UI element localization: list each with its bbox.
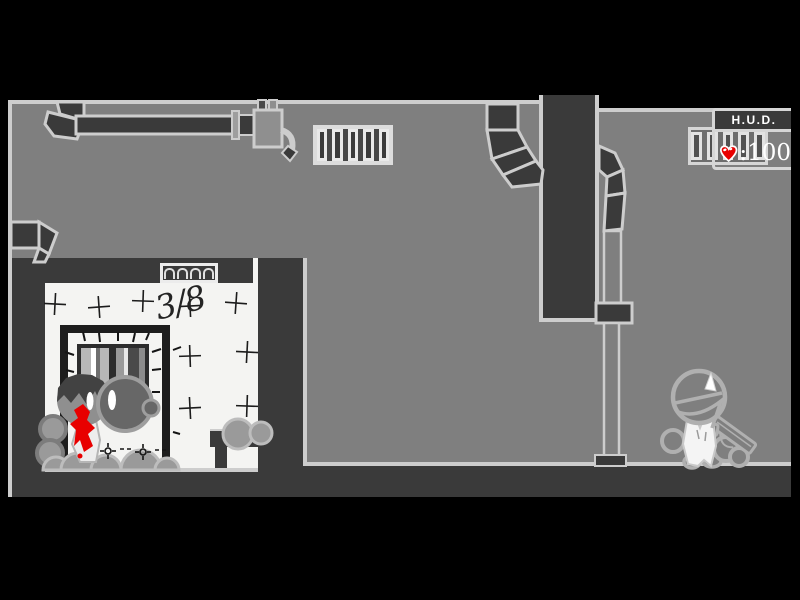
grill-slot <box>691 132 702 160</box>
floor-band <box>303 466 791 497</box>
vent-arch <box>164 268 175 279</box>
wall-under-column <box>539 322 599 462</box>
dark-column <box>539 95 599 322</box>
wall-upper-left <box>12 104 541 258</box>
hud-health-readout: :100 <box>715 132 793 171</box>
vent-arch <box>177 268 188 279</box>
grill-slot <box>363 129 373 161</box>
heart-icon <box>719 141 738 166</box>
frame-bottom <box>0 497 800 600</box>
vent-arch <box>203 268 214 279</box>
room-left-wall <box>12 283 45 497</box>
tiled-room <box>45 283 258 468</box>
ceiling-edge-left <box>8 100 545 104</box>
hud-panel: H.U.D. :100 <box>712 108 796 170</box>
wall-mid <box>307 258 541 462</box>
pillar-foot <box>258 462 303 497</box>
game-viewport: H.U.D. :100 3/8 <box>0 0 800 600</box>
grill-slot <box>332 129 342 161</box>
grill-slot <box>379 129 389 161</box>
wall-grill <box>313 125 393 165</box>
grill-slot <box>317 129 327 161</box>
grill-slot <box>348 129 358 161</box>
hud-title: H.U.D. <box>715 111 793 132</box>
pillar <box>258 258 303 462</box>
health-value: :100 <box>739 142 791 165</box>
